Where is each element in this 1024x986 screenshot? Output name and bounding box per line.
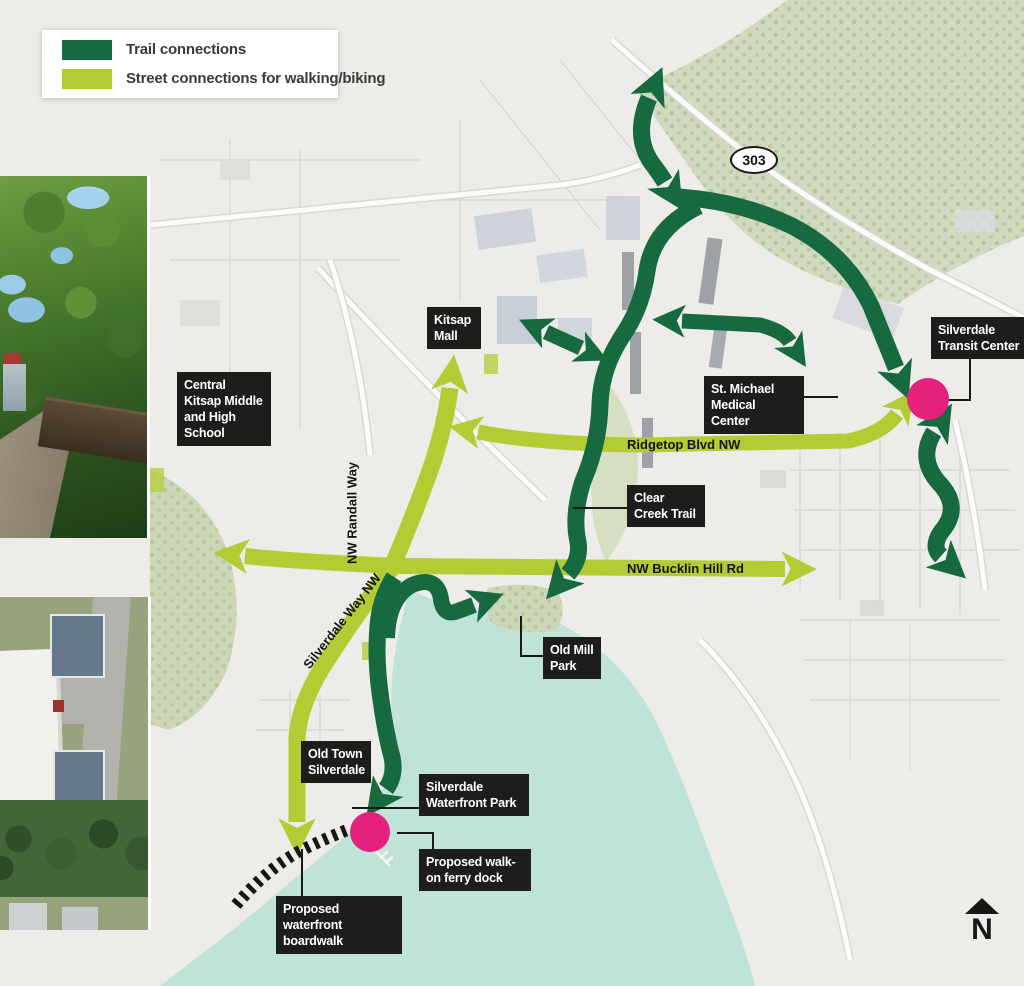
ferry-dock-marker	[350, 812, 390, 852]
aerial-roof-building-2	[53, 750, 104, 807]
label-ferry-dock: Proposed walk-on ferry dock	[419, 849, 531, 891]
aerial-house-1	[9, 903, 47, 930]
label-boardwalk: Proposed waterfront boardwalk	[276, 896, 402, 954]
trail-arrow-transit-south	[927, 432, 951, 556]
legend: Trail connections Street connections for…	[42, 30, 338, 98]
transit-center-marker	[907, 378, 949, 420]
north-arrow-icon	[965, 898, 999, 914]
label-clear-creek-trail: Clear Creek Trail	[627, 485, 705, 527]
aerial-tree-canopy	[0, 800, 151, 897]
legend-label-street: Street connections for walking/biking	[126, 70, 385, 87]
legend-row-trail: Trail connections	[62, 40, 322, 60]
legend-label-trail: Trail connections	[126, 41, 246, 58]
label-transit-center: Silverdale Transit Center	[931, 317, 1024, 359]
north-arrow: N	[958, 898, 1006, 946]
label-bucklin-hill-rd: NW Bucklin Hill Rd	[627, 561, 744, 576]
trail-swatch	[62, 40, 112, 60]
route-303-shield: 303	[730, 146, 778, 174]
label-school: Central Kitsap Middle and High School	[177, 372, 271, 446]
leader-transit	[947, 358, 970, 400]
label-kitsap-mall: Kitsap Mall	[427, 307, 481, 349]
aerial-house-2	[62, 907, 98, 930]
aerial-roof-building-1	[50, 614, 104, 678]
north-label: N	[958, 914, 1006, 946]
photo-building	[3, 364, 27, 411]
label-waterfront-park: Silverdale Waterfront Park	[419, 774, 529, 816]
label-old-mill-park: Old Mill Park	[543, 637, 601, 679]
aerial-car	[53, 700, 63, 712]
aerial-photo-inset	[0, 597, 151, 930]
label-old-town: Old Town Silverdale	[301, 741, 371, 783]
trail-arrow-double-medical	[682, 321, 790, 342]
label-ridgetop-blvd: Ridgetop Blvd NW	[627, 437, 740, 452]
map-canvas: Trail connections Street connections for…	[0, 0, 1024, 986]
label-randall-way: NW Randall Way	[345, 462, 360, 564]
map-artwork	[0, 0, 1024, 986]
street-swatch	[62, 69, 112, 89]
old-mill-park-area	[486, 585, 563, 632]
legend-row-street: Street connections for walking/biking	[62, 69, 322, 89]
trail-photo-inset	[0, 176, 150, 538]
label-medical-center: St. Michael Medical Center	[704, 376, 804, 434]
